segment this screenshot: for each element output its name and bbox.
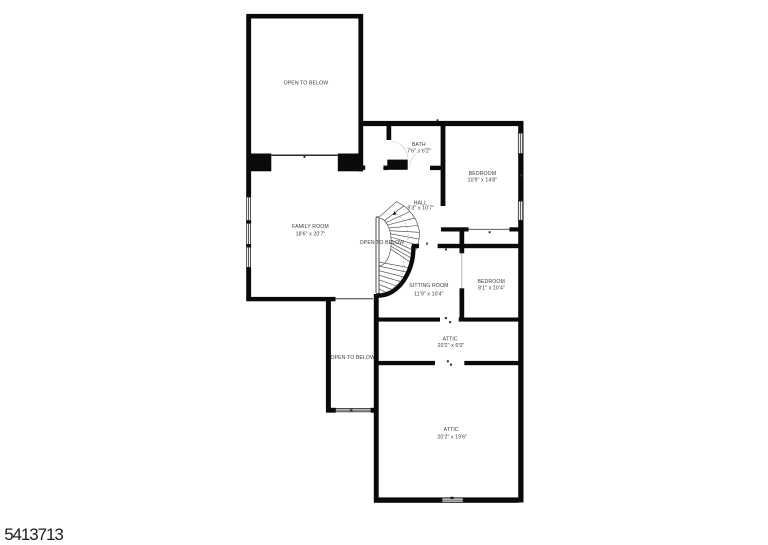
svg-text:20'2" x 19'6": 20'2" x 19'6" <box>437 434 467 440</box>
svg-text:7'6" x 6'2": 7'6" x 6'2" <box>407 148 431 154</box>
svg-text:20'2" x 6'0": 20'2" x 6'0" <box>438 343 465 349</box>
svg-text:OPEN TO BELOW: OPEN TO BELOW <box>330 355 375 361</box>
svg-text:OPEN TO BELOW: OPEN TO BELOW <box>284 80 329 86</box>
svg-text:BATH: BATH <box>412 142 426 148</box>
svg-text:ATTIC: ATTIC <box>444 427 459 433</box>
svg-text:18'6" x 20'7": 18'6" x 20'7" <box>296 231 326 237</box>
svg-text:FAMILY ROOM: FAMILY ROOM <box>292 224 329 230</box>
svg-text:ATTIC: ATTIC <box>443 337 458 343</box>
svg-text:OPEN TO BELOW: OPEN TO BELOW <box>360 240 405 246</box>
svg-text:9'3" x 10'7": 9'3" x 10'7" <box>407 206 434 212</box>
svg-text:BEDROOM: BEDROOM <box>469 171 497 177</box>
svg-text:5413713: 5413713 <box>4 525 63 544</box>
svg-text:11'9" x 10'4": 11'9" x 10'4" <box>414 291 443 297</box>
svg-text:10'9" x 14'8": 10'9" x 14'8" <box>468 178 498 184</box>
svg-text:8'1" x 10'4": 8'1" x 10'4" <box>478 286 505 292</box>
svg-text:SITTING ROOM: SITTING ROOM <box>409 283 448 289</box>
svg-text:BEDROOM: BEDROOM <box>477 279 505 285</box>
